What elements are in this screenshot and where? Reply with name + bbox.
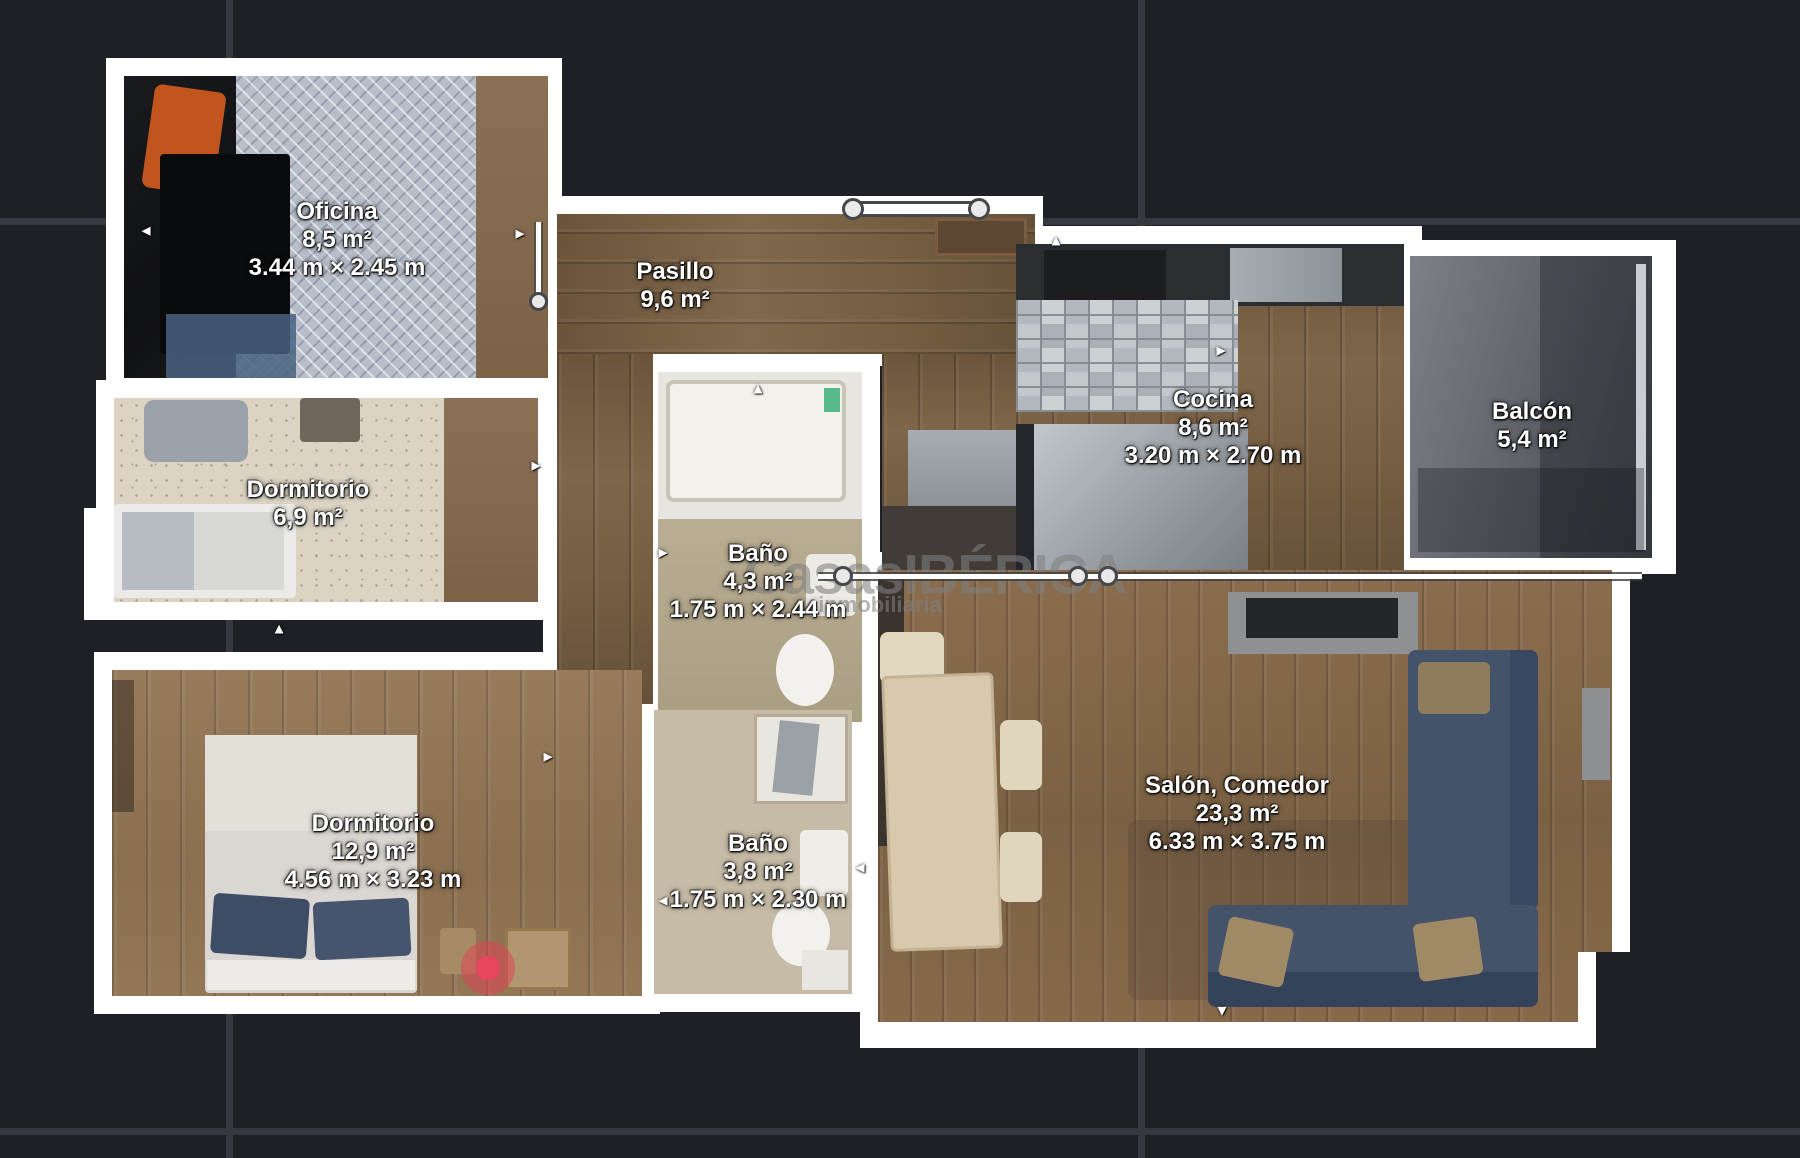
room-dims: 6.33 m × 3.75 m bbox=[1145, 828, 1329, 856]
door-arrow-icon: ▲ bbox=[1049, 233, 1064, 250]
door-handle-node[interactable] bbox=[968, 198, 990, 220]
room-name: Balcón bbox=[1492, 398, 1572, 426]
office-rug bbox=[166, 314, 296, 378]
door-arrow-icon: ▲ bbox=[272, 621, 287, 638]
dining-table bbox=[881, 672, 1003, 952]
wall-measure-handle[interactable] bbox=[529, 292, 548, 311]
steel-sink bbox=[1230, 248, 1342, 302]
sofa-pillow bbox=[1412, 916, 1483, 982]
room-name: Baño bbox=[670, 540, 847, 568]
camera-position-marker[interactable] bbox=[461, 941, 515, 995]
wood-strip bbox=[444, 398, 538, 602]
door-arrow-icon: ► bbox=[1214, 343, 1229, 360]
room-dims: 1.75 m × 2.30 m bbox=[670, 886, 847, 914]
room-name: Salón, Comedor bbox=[1145, 772, 1329, 800]
door-handle-node[interactable] bbox=[842, 198, 864, 220]
sofa-chaise-edge bbox=[1510, 650, 1538, 910]
hall-cabinet bbox=[935, 218, 1027, 256]
room-name: Baño bbox=[670, 830, 847, 858]
side-table bbox=[1582, 688, 1610, 780]
dining-chair bbox=[1000, 720, 1042, 790]
room-dims: 4.56 m × 3.23 m bbox=[285, 866, 462, 894]
room-name: Oficina bbox=[249, 198, 426, 226]
room-area: 8,6 m² bbox=[1125, 414, 1302, 442]
room-label-cocina: Cocina 8,6 m² 3.20 m × 2.70 m bbox=[1125, 386, 1302, 470]
room-label-dormitorio-small: Dormitorio 6,9 m² bbox=[247, 476, 370, 532]
toilet bbox=[776, 634, 834, 706]
hob bbox=[1044, 250, 1166, 300]
camera-position-dot bbox=[476, 956, 500, 980]
door-arrow-icon: ▼ bbox=[1215, 1003, 1230, 1020]
room-dims: 1.75 m × 2.44 m bbox=[670, 596, 847, 624]
bathtub bbox=[666, 380, 846, 502]
room-area: 8,5 m² bbox=[249, 226, 426, 254]
room-area: 5,4 m² bbox=[1492, 426, 1572, 454]
room-area: 12,9 m² bbox=[285, 838, 462, 866]
room-area: 4,3 m² bbox=[670, 568, 847, 596]
room-label-dormitorio-big: Dormitorio 12,9 m² 4.56 m × 3.23 m bbox=[285, 810, 462, 894]
room-area: 3,8 m² bbox=[670, 858, 847, 886]
bench bbox=[505, 928, 571, 990]
room-dims: 3.20 m × 2.70 m bbox=[1125, 442, 1302, 470]
bed-blanket bbox=[122, 512, 194, 590]
room-label-pasillo: Pasillo 9,6 m² bbox=[636, 258, 713, 314]
side-table bbox=[300, 398, 360, 442]
room-label-salon: Salón, Comedor 23,3 m² 6.33 m × 3.75 m bbox=[1145, 772, 1329, 856]
bed-sheet bbox=[207, 960, 415, 990]
sofa-pillow bbox=[1418, 662, 1490, 714]
bed-pillow bbox=[313, 898, 412, 961]
tv bbox=[1246, 598, 1398, 638]
gray-chair bbox=[144, 400, 248, 462]
wall-measure-handle[interactable] bbox=[1098, 566, 1118, 586]
room-area: 6,9 m² bbox=[247, 504, 370, 532]
door-arrow-icon: ▲ bbox=[751, 381, 766, 398]
entrance-door-handle[interactable] bbox=[851, 201, 981, 217]
shadow-left bbox=[112, 680, 134, 812]
shower-glass bbox=[772, 720, 819, 796]
grid-line-horizontal bbox=[0, 1128, 1800, 1135]
door-arrow-icon: ► bbox=[529, 458, 544, 475]
room-name: Dormitorio bbox=[285, 810, 462, 838]
door-arrow-icon: ► bbox=[656, 545, 671, 562]
wall-measure-handle[interactable] bbox=[1068, 566, 1088, 586]
room-label-bano-bottom: Baño 3,8 m² 1.75 m × 2.30 m bbox=[670, 830, 847, 914]
room-name: Cocina bbox=[1125, 386, 1302, 414]
door-arrow-icon: ◄ bbox=[656, 893, 671, 910]
room-name: Dormitorio bbox=[247, 476, 370, 504]
room-pasillo bbox=[557, 214, 1035, 354]
room-name: Pasillo bbox=[636, 258, 713, 286]
dining-chair bbox=[1000, 832, 1042, 902]
floorplan-canvas[interactable]: ◄ ► ► ▲ ► ▲ ▲ ► ◄ ► ▼ ◄ CasasIBÉRICA inm… bbox=[0, 0, 1800, 1158]
green-towel bbox=[824, 388, 840, 412]
balcony-shade bbox=[1418, 468, 1644, 552]
bed-pillow bbox=[210, 893, 310, 960]
wall-measure-line[interactable] bbox=[818, 574, 1642, 579]
toilet-tank bbox=[802, 950, 848, 990]
room-label-balcon: Balcón 5,4 m² bbox=[1492, 398, 1572, 454]
door-arrow-icon: ► bbox=[541, 749, 556, 766]
door-arrow-icon: ◄ bbox=[139, 223, 154, 240]
room-dims: 3.44 m × 2.45 m bbox=[249, 254, 426, 282]
room-label-oficina: Oficina 8,5 m² 3.44 m × 2.45 m bbox=[249, 198, 426, 282]
door-arrow-icon: ◄ bbox=[853, 860, 868, 877]
wall-measure-line-vertical[interactable] bbox=[536, 222, 541, 296]
room-pasillo-lower bbox=[882, 354, 1035, 572]
room-label-bano-mid: Baño 4,3 m² 1.75 m × 2.44 m bbox=[670, 540, 847, 624]
room-area: 23,3 m² bbox=[1145, 800, 1329, 828]
door-arrow-icon: ► bbox=[513, 226, 528, 243]
room-area: 9,6 m² bbox=[636, 286, 713, 314]
room-pasillo-column bbox=[557, 354, 653, 704]
